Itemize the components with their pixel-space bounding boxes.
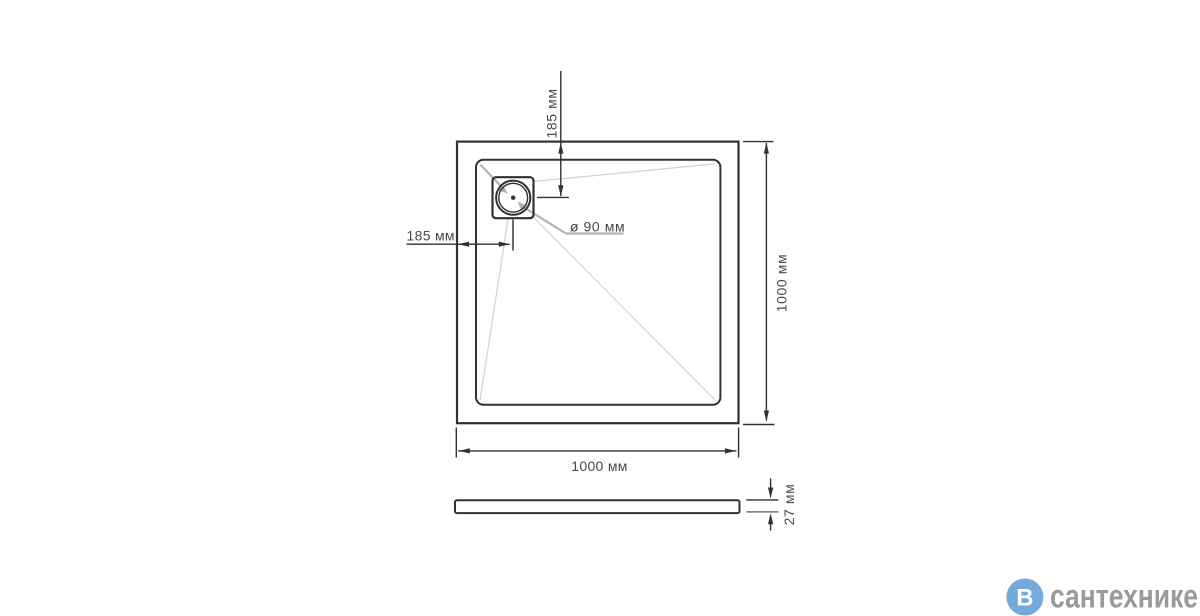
- svg-text:1000 мм: 1000 мм: [571, 458, 627, 474]
- svg-text:ø 90 мм: ø 90 мм: [570, 219, 625, 235]
- svg-text:В: В: [1016, 585, 1033, 612]
- svg-text:185 мм: 185 мм: [544, 88, 560, 138]
- svg-text:27 мм: 27 мм: [781, 484, 797, 526]
- svg-text:185 мм: 185 мм: [407, 228, 455, 244]
- svg-text:сантехнике: сантехнике: [1050, 578, 1198, 615]
- svg-text:1000 мм: 1000 мм: [773, 254, 789, 312]
